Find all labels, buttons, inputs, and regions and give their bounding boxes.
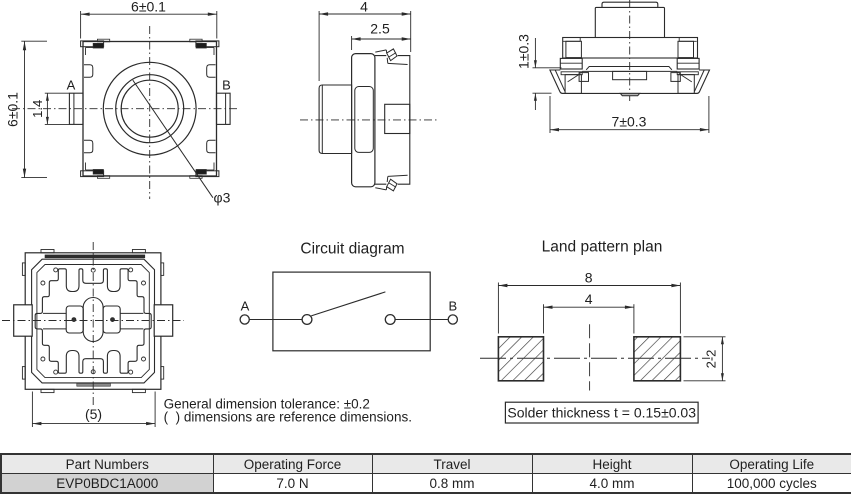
svg-text:Land pattern plan: Land pattern plan: [542, 239, 663, 256]
svg-text:A: A: [241, 299, 250, 314]
svg-text:2-2: 2-2: [704, 350, 719, 369]
svg-text:6±0.1: 6±0.1: [5, 92, 21, 127]
svg-text:4: 4: [585, 291, 593, 307]
svg-text:2.5: 2.5: [370, 21, 390, 37]
svg-text:(5): (5): [85, 406, 102, 422]
svg-text:B: B: [222, 78, 231, 93]
svg-text:B: B: [448, 299, 457, 314]
svg-text:φ3: φ3: [214, 190, 231, 206]
svg-text:8: 8: [585, 270, 593, 286]
svg-text:1±0.3: 1±0.3: [516, 34, 532, 69]
svg-text:6±0.1: 6±0.1: [131, 0, 166, 15]
svg-text:4: 4: [360, 0, 368, 14]
svg-text:Solder thickness t = 0.15±0.03: Solder thickness t = 0.15±0.03: [507, 404, 696, 420]
svg-text:( ) dimensions are reference: ( ) dimensions are reference dimensions.: [164, 410, 412, 425]
svg-text:7±0.3: 7±0.3: [612, 114, 647, 130]
svg-text:A: A: [67, 78, 76, 93]
svg-text:1.4: 1.4: [30, 100, 45, 118]
svg-text:Circuit diagram: Circuit diagram: [300, 241, 404, 258]
